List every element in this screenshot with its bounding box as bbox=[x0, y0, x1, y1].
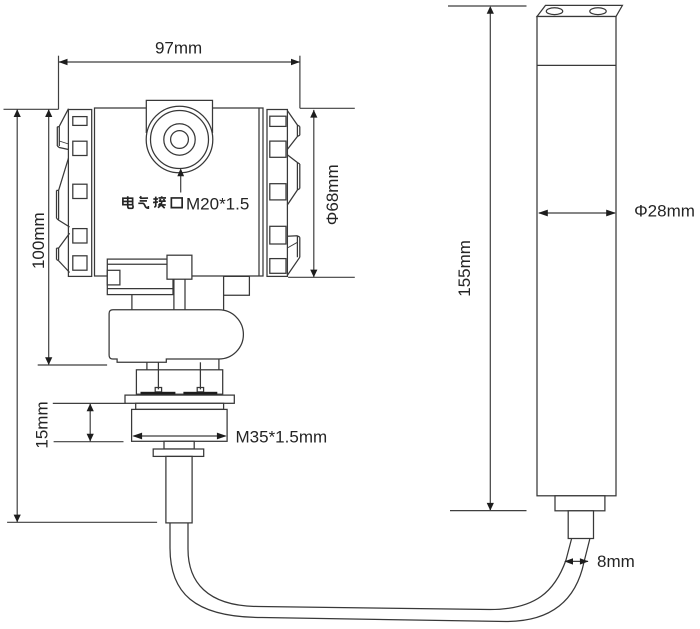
svg-text:M20*1.5: M20*1.5 bbox=[186, 195, 249, 214]
svg-text:Φ68mm: Φ68mm bbox=[323, 164, 342, 225]
svg-text:M35*1.5mm: M35*1.5mm bbox=[236, 428, 328, 447]
svg-text:97mm: 97mm bbox=[155, 39, 202, 58]
svg-text:Φ28mm: Φ28mm bbox=[634, 201, 695, 220]
svg-text:155mm: 155mm bbox=[455, 240, 474, 297]
svg-text:15mm: 15mm bbox=[33, 401, 52, 448]
svg-text:8mm: 8mm bbox=[597, 552, 635, 571]
svg-text:100mm: 100mm bbox=[29, 212, 48, 269]
